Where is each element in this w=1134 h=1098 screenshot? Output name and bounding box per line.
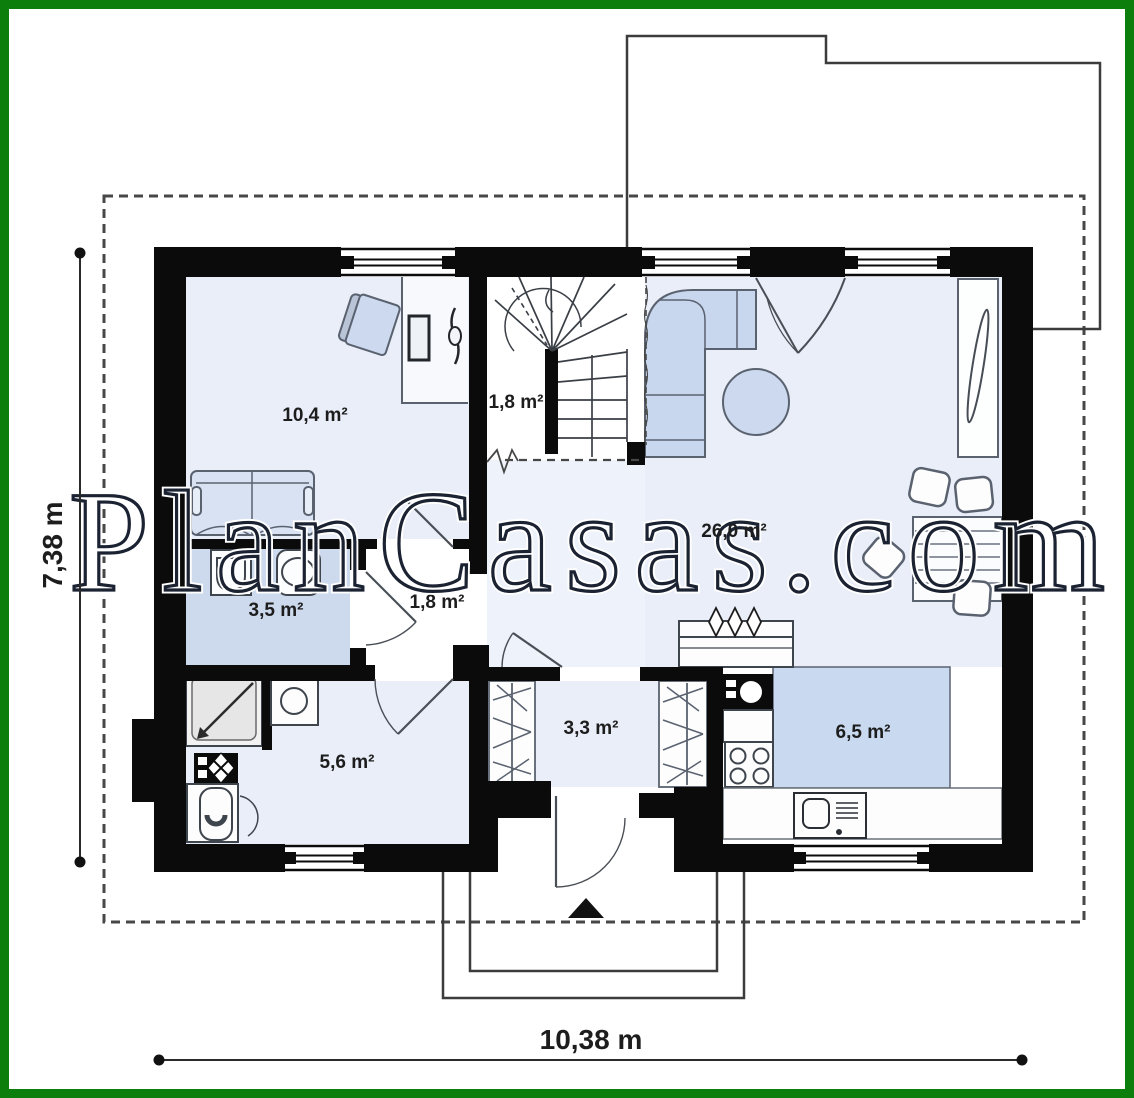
svg-text:7,38 m: 7,38 m: [37, 501, 68, 588]
svg-text:10,4 m²: 10,4 m²: [282, 405, 347, 426]
svg-text:3,3 m²: 3,3 m²: [564, 718, 619, 739]
svg-text:5,6 m²: 5,6 m²: [320, 752, 375, 773]
svg-text:26,0 m²: 26,0 m²: [701, 521, 766, 542]
svg-text:1,8 m²: 1,8 m²: [489, 392, 544, 413]
svg-text:6,5 m²: 6,5 m²: [836, 722, 891, 743]
svg-text:10,38 m: 10,38 m: [540, 1024, 643, 1055]
svg-text:PlanCasas.com: PlanCasas.com: [69, 463, 1105, 622]
